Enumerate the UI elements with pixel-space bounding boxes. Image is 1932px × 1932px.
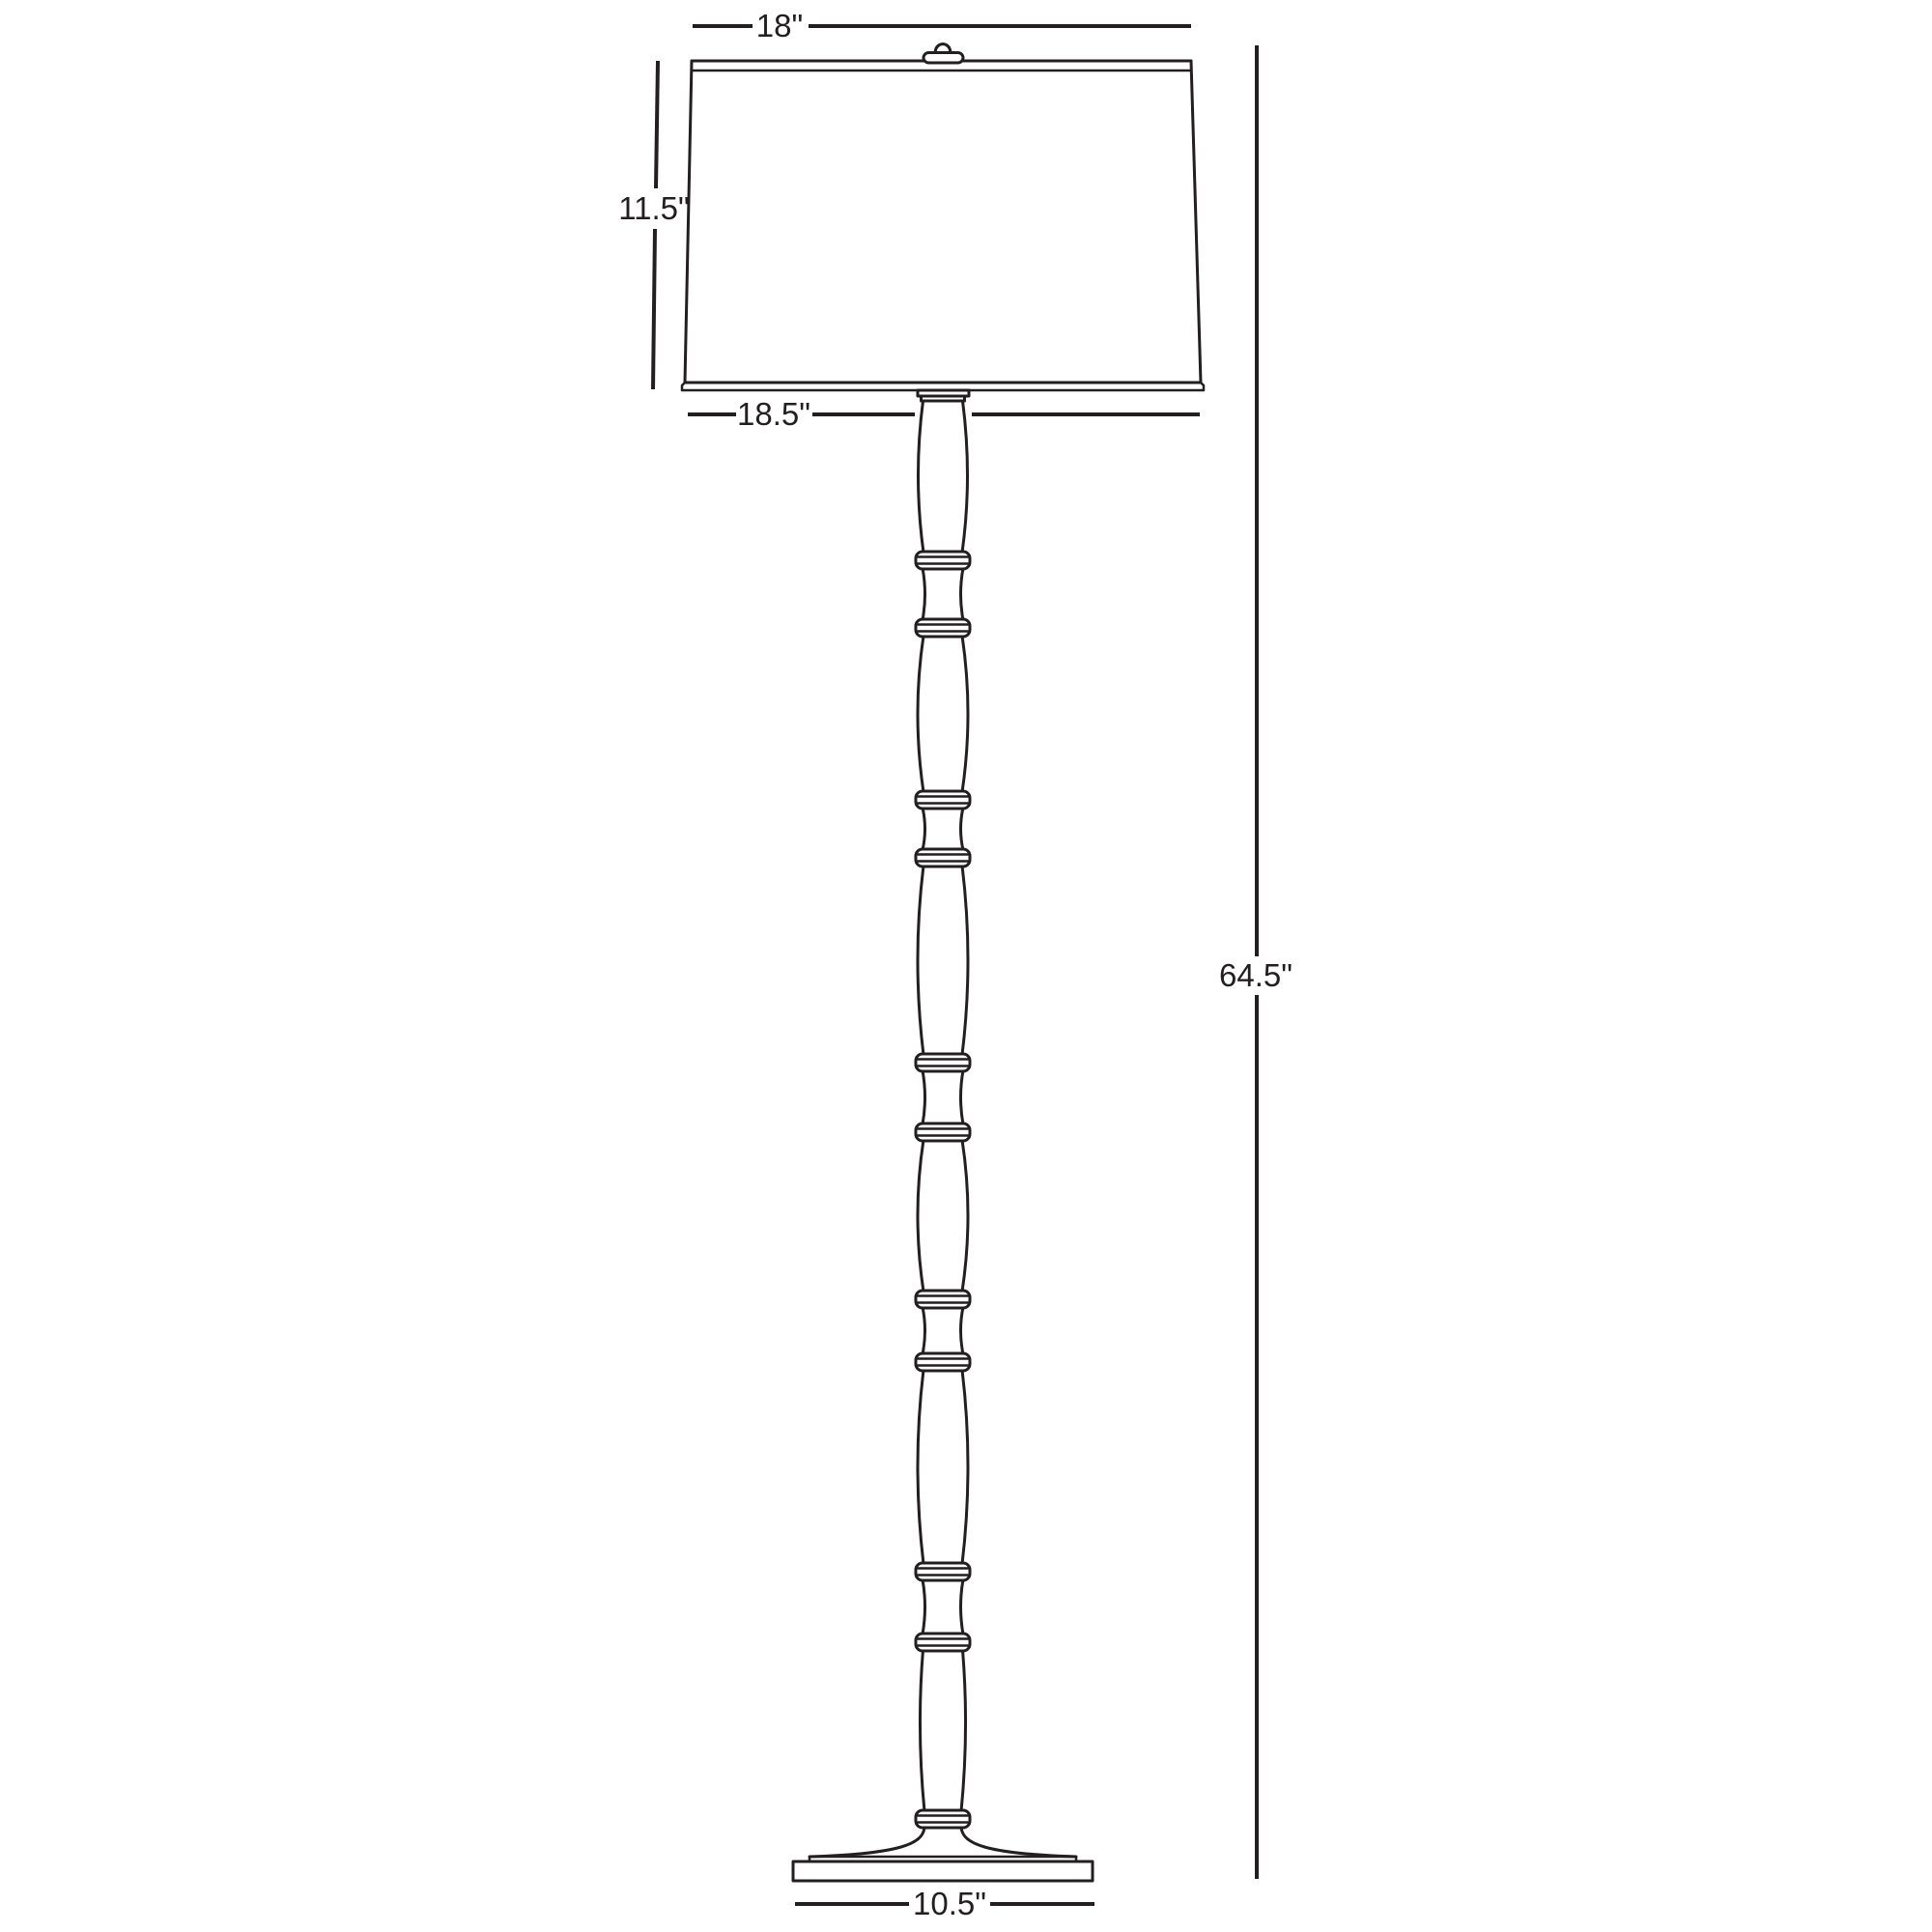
stem-collar-step: [922, 396, 965, 401]
stem-waist: [923, 568, 925, 620]
base-plinth: [793, 1861, 1093, 1881]
stem-waist: [923, 1307, 925, 1354]
dim-line: [656, 61, 658, 188]
stem-segment: [918, 1140, 923, 1292]
bamboo-ring: [916, 619, 970, 637]
floor-lamp-line-drawing: 18" 11.5" 18.5" 64.5": [0, 0, 1932, 1932]
finial-base: [923, 53, 963, 64]
stem-waist: [961, 1307, 964, 1354]
stem-waist: [923, 1070, 925, 1124]
dim-label-shade-height: 11.5": [618, 190, 690, 226]
bamboo-ring: [916, 1634, 970, 1651]
stem-segment: [962, 1140, 968, 1292]
dim-overall-height: 64.5": [1219, 45, 1293, 1879]
bamboo-ring: [916, 849, 970, 867]
base-flare-left: [810, 1828, 924, 1857]
stem-waist: [961, 808, 964, 850]
bamboo-ring: [916, 791, 970, 809]
stem-segment: [918, 1370, 923, 1564]
dim-base-width: 10.5": [795, 1886, 1094, 1921]
stem-segment: [961, 1650, 966, 1811]
dim-label-shade-top-width: 18": [756, 8, 803, 43]
dim-label-shade-bottom-width: 18.5": [737, 396, 810, 432]
lamp-shade: [682, 61, 1204, 390]
stem-waist: [923, 1579, 925, 1634]
dim-shade-height: 11.5": [618, 61, 690, 389]
bamboo-ring: [916, 1563, 970, 1580]
stem: [916, 390, 970, 1828]
stem-segment: [918, 401, 923, 553]
finial: [923, 44, 963, 64]
base-flare-right: [961, 1828, 1076, 1857]
shade-right-edge: [1191, 61, 1201, 383]
bamboo-ring: [916, 1353, 970, 1371]
stem-segment: [962, 636, 968, 792]
stem-segment: [920, 1650, 924, 1811]
dim-label-base-width: 10.5": [913, 1886, 986, 1921]
stem-segment: [962, 401, 968, 553]
dim-shade-top-width: 18": [693, 8, 1191, 43]
dim-label-overall-height: 64.5": [1219, 957, 1293, 993]
stem-waist: [961, 1579, 964, 1634]
bamboo-ring: [916, 1054, 970, 1071]
stem-segment: [962, 866, 968, 1055]
stem-waist: [961, 568, 964, 620]
dimension-diagram: 18" 11.5" 18.5" 64.5": [0, 0, 1932, 1932]
stem-waist: [923, 808, 925, 850]
bamboo-ring: [916, 1123, 970, 1141]
stem-waist: [961, 1070, 964, 1124]
bamboo-ring: [916, 552, 970, 569]
base: [793, 1828, 1093, 1881]
bamboo-ring: [916, 1291, 970, 1308]
bamboo-ring: [916, 1810, 970, 1828]
dim-line: [653, 229, 655, 389]
stem-segment: [962, 1370, 968, 1564]
stem-segment: [918, 636, 923, 792]
stem-segment: [918, 866, 923, 1055]
